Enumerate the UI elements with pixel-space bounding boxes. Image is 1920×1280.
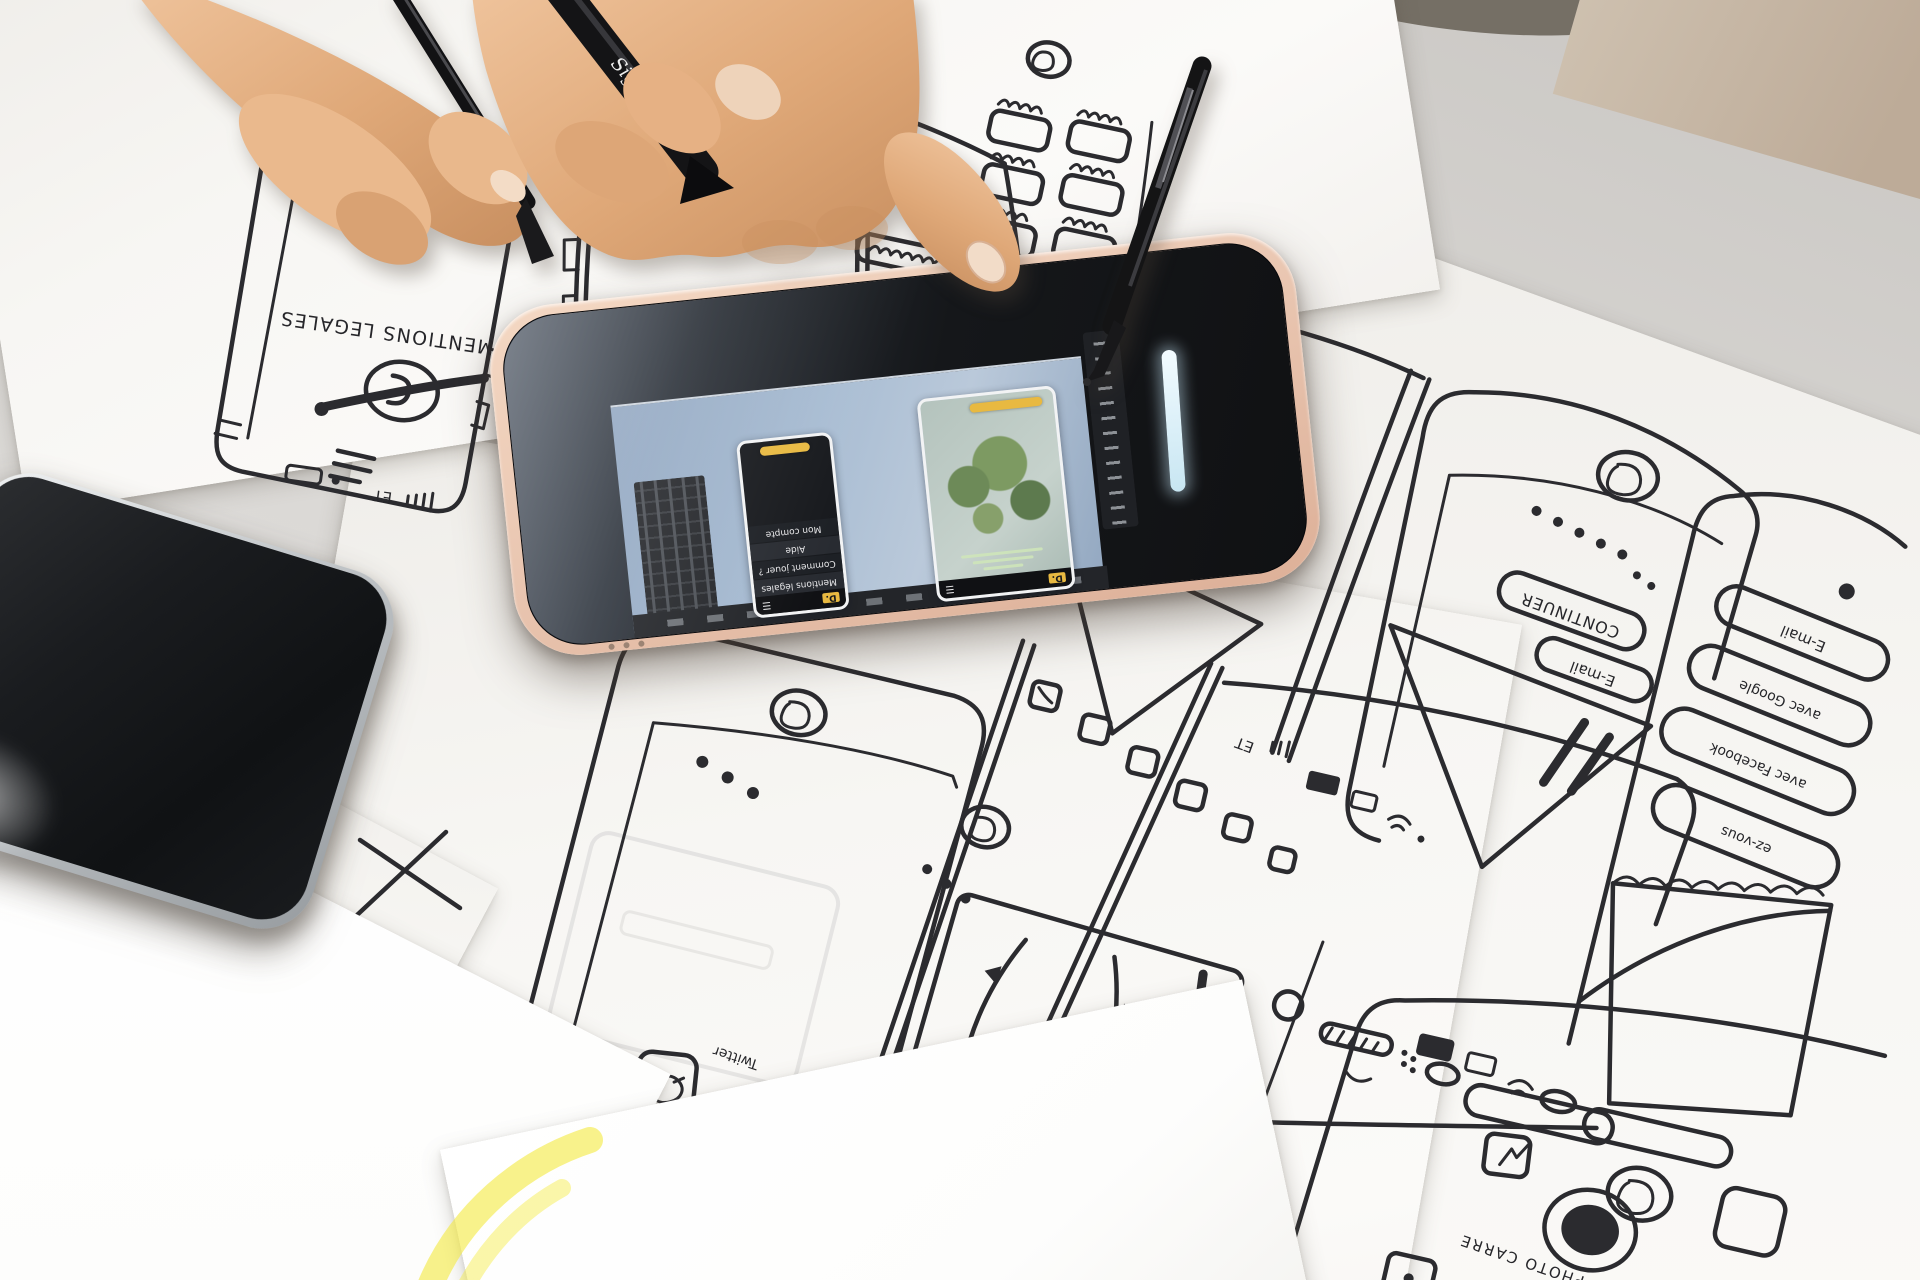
receiver-row: [1406, 1033, 1742, 1170]
flash-icon: [1483, 1133, 1532, 1178]
hamburger-icon: [211, 420, 376, 484]
home-button-icon: [768, 686, 830, 740]
filmstrip-squares: [1005, 680, 1321, 873]
svg-text:E-mail: E-mail: [1778, 622, 1828, 656]
gallery-thumb: [1712, 1185, 1788, 1258]
floor-corner: [1553, 0, 1920, 226]
svg-text:ET: ET: [371, 486, 393, 507]
home-button-icon: [1594, 447, 1661, 505]
small-toggle: [1380, 1252, 1437, 1280]
highlighter-mark: [402, 1118, 612, 1280]
google-pill: avec Google: [1682, 639, 1877, 752]
pen-tip: [516, 198, 554, 264]
hands-with-markers: Sign: [80, 0, 1080, 350]
x-mark: [348, 828, 478, 928]
email-pill: E-mail: [1710, 580, 1894, 685]
twitter-label: Twitter: [711, 1042, 762, 1072]
photo-of-wireframing-session: MENTIONS LEGALES ET et gagnez des Jouez: [0, 0, 1920, 1280]
dots-row: [1522, 505, 1666, 590]
right-hand: Sign: [470, 0, 1045, 314]
continue-button: CONTINUER: [1494, 567, 1649, 654]
logo-sketch: [314, 351, 485, 438]
ballpoint-pen: [1030, 30, 1260, 400]
